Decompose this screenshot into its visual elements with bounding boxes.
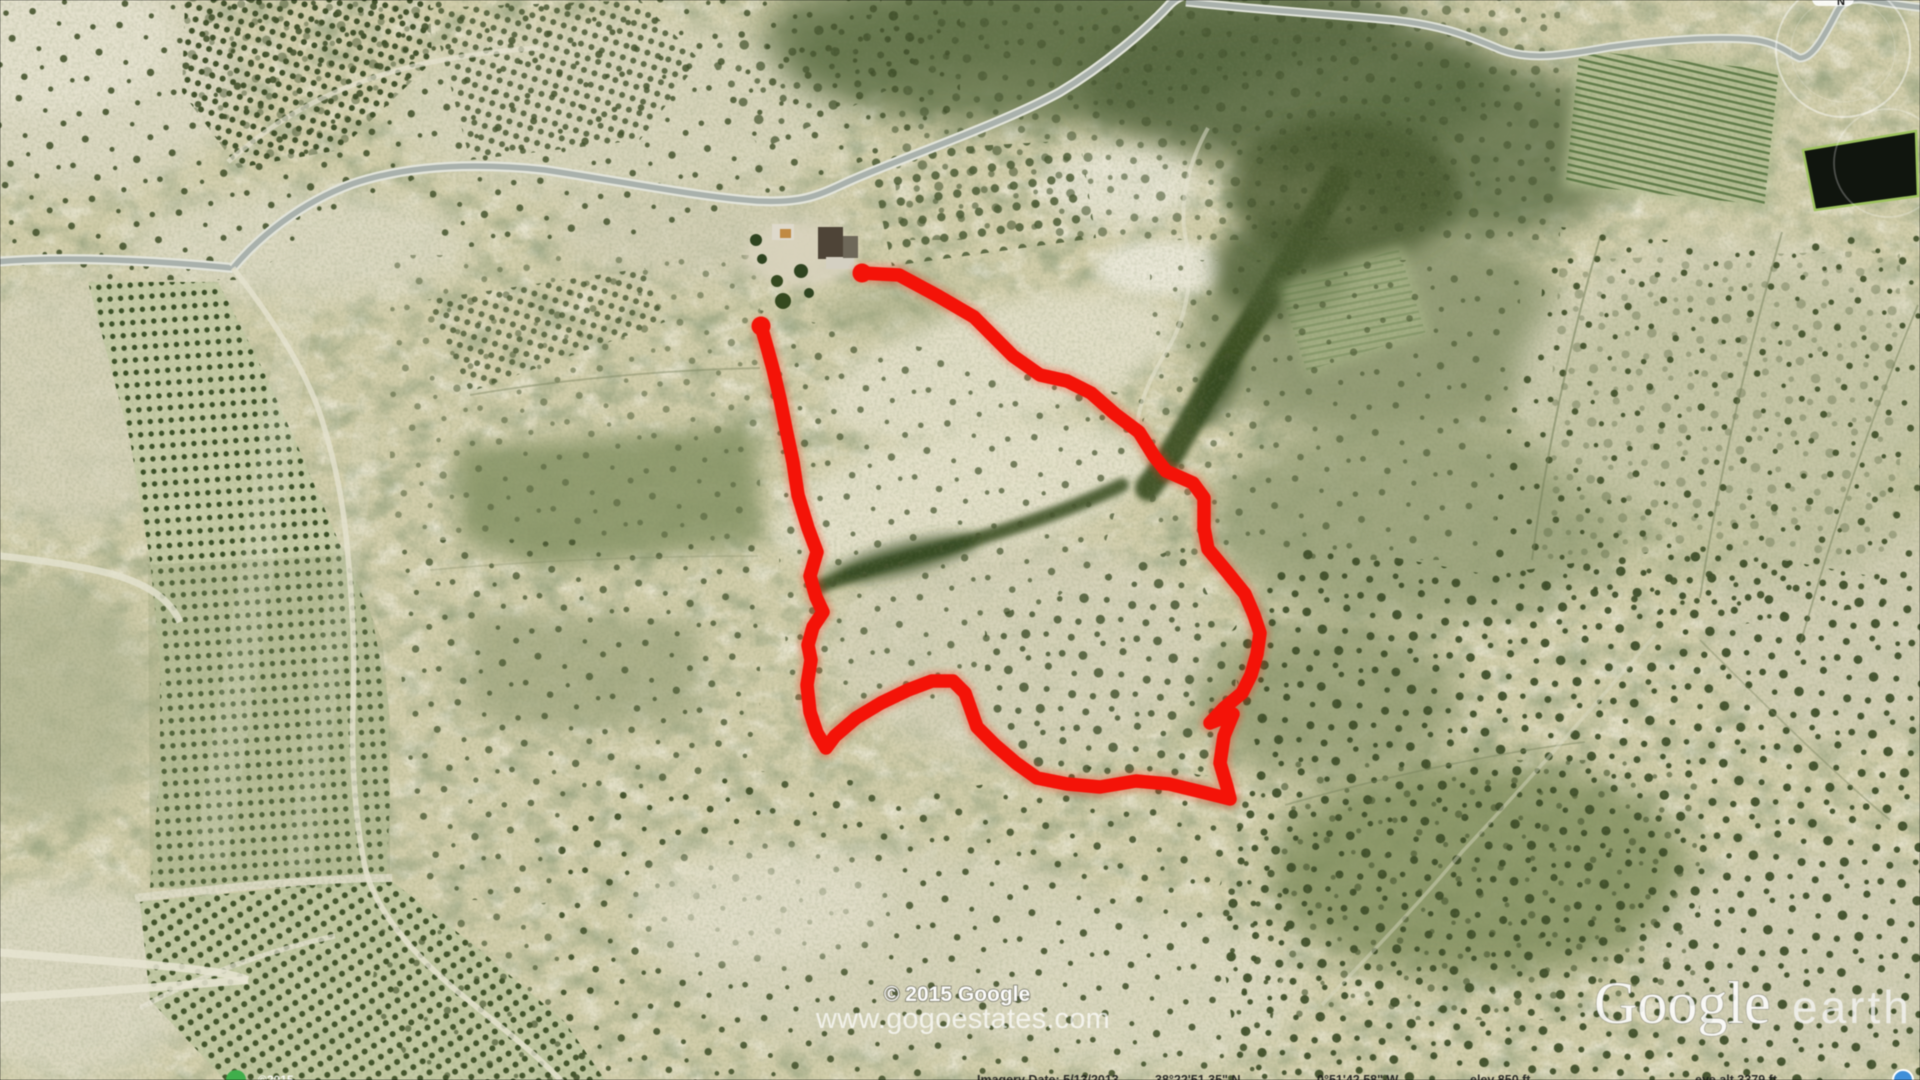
svg-text:©2015: ©2015: [258, 1073, 294, 1080]
svg-text:www.gogoestates.com: www.gogoestates.com: [815, 1003, 1110, 1035]
svg-text:N: N: [1837, 0, 1845, 8]
svg-text:Google: Google: [1594, 970, 1771, 1036]
svg-text:earth: earth: [1792, 981, 1912, 1033]
